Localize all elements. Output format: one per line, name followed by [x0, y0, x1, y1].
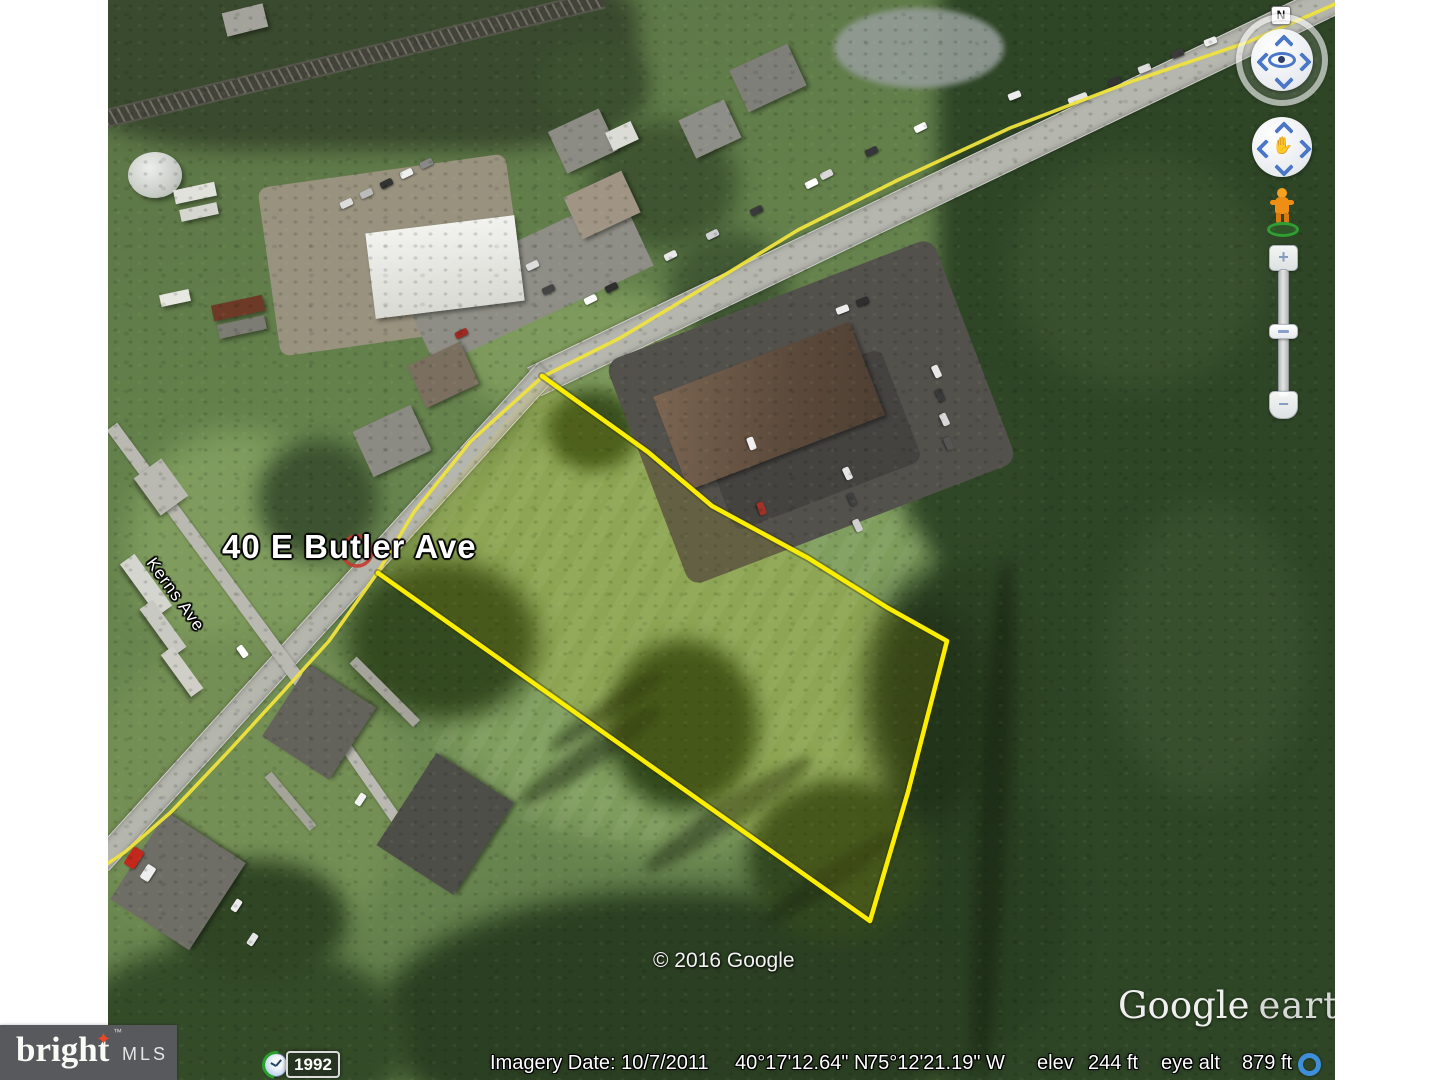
- zoom-slider-handle[interactable]: [1269, 324, 1298, 339]
- status-latitude: 40°17'12.64" N: [735, 1052, 868, 1075]
- bright-mls-logo: bright ✦ ™ MLS: [0, 1025, 177, 1080]
- watermark-earth: earth: [1259, 984, 1335, 1027]
- eye-pupil-icon: [1278, 56, 1285, 63]
- status-elevation: 244 ft: [1088, 1052, 1138, 1075]
- watermark-google: Google: [1118, 984, 1250, 1027]
- logo-word-mls: MLS: [122, 1044, 168, 1065]
- hand-icon: ✋: [1272, 136, 1293, 156]
- car: [913, 122, 928, 134]
- pond: [834, 8, 1004, 88]
- google-earth-window: 40 E Butler Ave Kerns Ave © 2016 Google …: [0, 0, 1440, 1080]
- status-eye-alt-label: eye alt: [1161, 1052, 1220, 1075]
- commercial-white-building: [365, 215, 524, 319]
- streaming-progress-icon: [1298, 1053, 1321, 1076]
- look-up-arrow-icon[interactable]: [1274, 34, 1294, 54]
- copyright-text: © 2016 Google: [653, 949, 795, 973]
- pegman-body: [1275, 197, 1289, 214]
- status-eye-altitude: 879 ft: [1242, 1052, 1292, 1075]
- car: [864, 146, 879, 158]
- car: [804, 178, 819, 190]
- star-icon: ✦: [96, 1029, 111, 1050]
- pan-right-arrow-icon[interactable]: [1292, 139, 1312, 159]
- pan-down-arrow-icon[interactable]: [1274, 157, 1294, 177]
- trailer-truck-2: [179, 202, 219, 222]
- look-joystick[interactable]: [1251, 29, 1313, 91]
- pegman-base: [1267, 222, 1299, 237]
- google-earth-watermark: Googleearth: [1118, 984, 1335, 1027]
- history-year-badge[interactable]: 1992: [286, 1051, 340, 1078]
- house-4: [729, 44, 806, 113]
- pan-joystick[interactable]: ✋: [1252, 117, 1312, 177]
- forest-canopy-light2: [1108, 500, 1308, 800]
- clock-icon[interactable]: [264, 1053, 288, 1077]
- zoom-out-button[interactable]: −: [1269, 391, 1298, 419]
- zoom-in-button[interactable]: +: [1269, 245, 1298, 271]
- forest-edge-shadow: [868, 600, 988, 820]
- pegman-streetview[interactable]: [1264, 188, 1300, 236]
- trademark-symbol: ™: [113, 1027, 122, 1037]
- map-viewport[interactable]: 40 E Butler Ave Kerns Ave © 2016 Google …: [108, 0, 1335, 1080]
- trailer-truck-3: [159, 289, 191, 307]
- trailer-truck-1: [173, 182, 217, 204]
- status-elev-label: elev: [1037, 1052, 1074, 1075]
- car: [819, 169, 834, 181]
- look-down-arrow-icon[interactable]: [1274, 70, 1294, 90]
- slider-grip-icon: [1278, 330, 1289, 333]
- status-imagery-date: Imagery Date: 10/7/2011: [490, 1052, 709, 1075]
- forest-mid-roadside: [348, 560, 538, 720]
- status-longitude: 75°12'21.19" W: [867, 1052, 1005, 1075]
- car: [749, 205, 764, 217]
- forest-canopy-light1: [1008, 150, 1268, 390]
- address-label: 40 E Butler Ave: [222, 528, 477, 566]
